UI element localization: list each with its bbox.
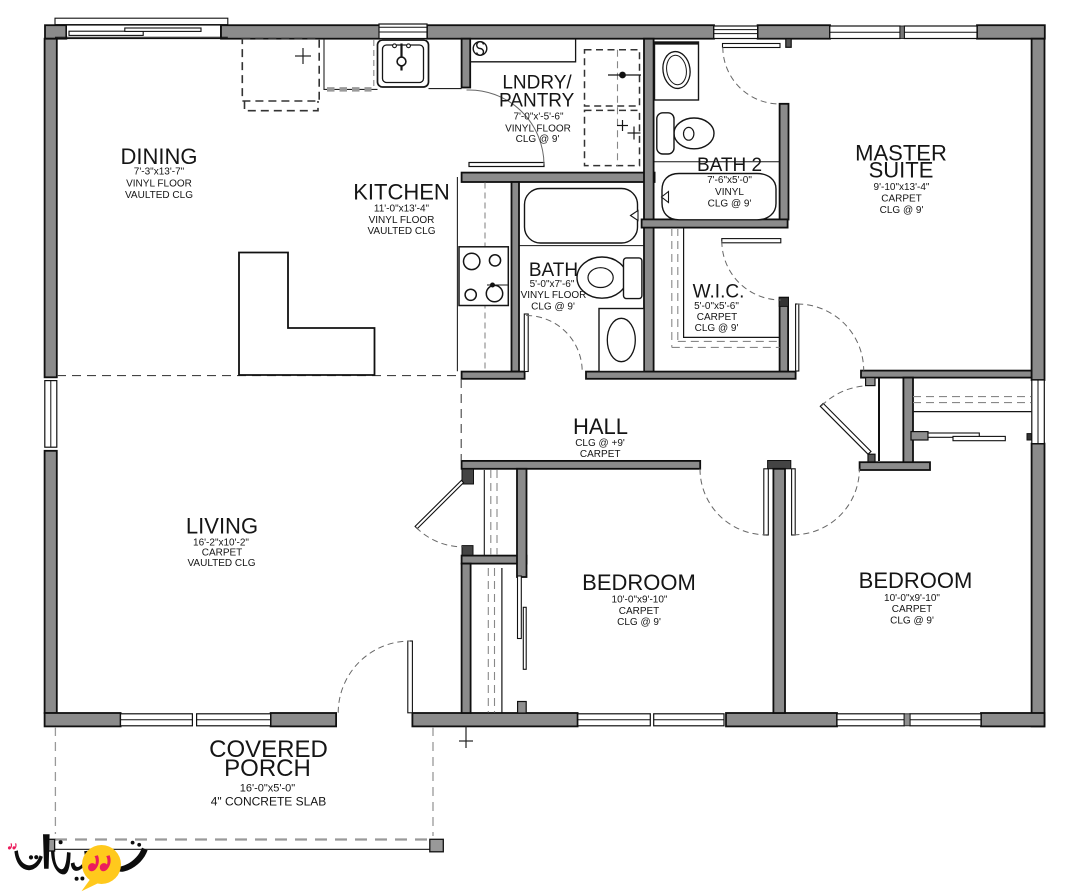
- svg-text:SUITE: SUITE: [869, 157, 934, 182]
- svg-text:CARPET: CARPET: [881, 193, 922, 204]
- svg-text:PANTRY: PANTRY: [499, 91, 575, 112]
- svg-text:5'-0"x7'-6": 5'-0"x7'-6": [530, 279, 575, 290]
- svg-text:7'-6"x5'-0": 7'-6"x5'-0": [707, 175, 752, 186]
- svg-text:CLG @ 9': CLG @ 9': [695, 323, 739, 334]
- svg-text:CLG @ +9': CLG @ +9': [575, 438, 625, 449]
- svg-text:KITCHEN: KITCHEN: [353, 180, 450, 205]
- svg-text:CARPET: CARPET: [580, 449, 621, 460]
- svg-text:VINYL FLOOR: VINYL FLOOR: [505, 123, 571, 134]
- svg-text:4" CONCRETE SLAB: 4" CONCRETE SLAB: [211, 794, 327, 808]
- svg-text:BATH 2: BATH 2: [697, 155, 762, 176]
- svg-text:CLG @ 9': CLG @ 9': [617, 617, 661, 628]
- svg-text:CARPET: CARPET: [619, 606, 660, 617]
- svg-text:9'-10"x13'-4": 9'-10"x13'-4": [874, 182, 930, 193]
- svg-text:10'-0"x9'-10": 10'-0"x9'-10": [612, 595, 668, 606]
- svg-text:10'-0"x9'-10": 10'-0"x9'-10": [884, 593, 940, 604]
- svg-text:BEDROOM: BEDROOM: [582, 570, 696, 595]
- svg-text:LIVING: LIVING: [186, 514, 258, 539]
- svg-text:16'-0"x5'-0": 16'-0"x5'-0": [240, 783, 296, 795]
- svg-text:VINYL FLOOR: VINYL FLOOR: [126, 179, 192, 190]
- svg-text:CLG @ 9': CLG @ 9': [880, 205, 924, 216]
- svg-text:VAULTED CLG: VAULTED CLG: [368, 226, 436, 237]
- svg-text:CARPET: CARPET: [892, 604, 933, 615]
- svg-text:CARPET: CARPET: [697, 312, 738, 323]
- svg-text:CLG @ 9': CLG @ 9': [708, 198, 752, 209]
- svg-text:W.I.C.: W.I.C.: [693, 281, 745, 302]
- svg-text:HALL: HALL: [573, 414, 628, 439]
- svg-text:CARPET: CARPET: [202, 548, 243, 559]
- svg-text:5'-0"x5'-6": 5'-0"x5'-6": [694, 301, 739, 312]
- svg-text:7'-0"x'-5'-6": 7'-0"x'-5'-6": [513, 112, 564, 123]
- svg-text:CLG @ 9': CLG @ 9': [890, 616, 934, 627]
- svg-text:CLG @ 9': CLG @ 9': [516, 134, 560, 145]
- svg-text:BEDROOM: BEDROOM: [859, 568, 973, 593]
- svg-text:PORCH: PORCH: [224, 755, 311, 782]
- svg-text:VAULTED CLG: VAULTED CLG: [125, 190, 193, 201]
- svg-text:DINING: DINING: [121, 144, 198, 169]
- svg-text:VAULTED CLG: VAULTED CLG: [188, 558, 256, 569]
- svg-text:BATH: BATH: [529, 260, 578, 281]
- svg-text:VINYL FLOOR: VINYL FLOOR: [521, 290, 587, 301]
- svg-text:7'-3"x13'-7": 7'-3"x13'-7": [134, 167, 185, 178]
- svg-text:11'-0"x13'-4": 11'-0"x13'-4": [374, 203, 430, 214]
- svg-text:VINYL: VINYL: [715, 187, 744, 198]
- svg-text:CLG @ 9': CLG @ 9': [531, 301, 575, 312]
- svg-text:VINYL FLOOR: VINYL FLOOR: [369, 215, 435, 226]
